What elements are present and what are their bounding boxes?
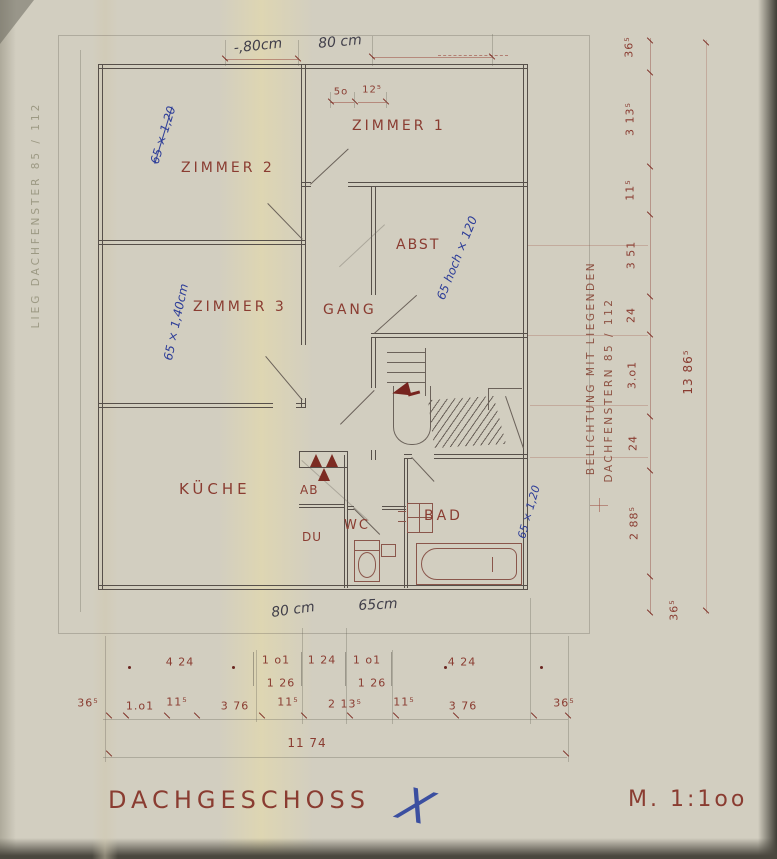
centerline-extension: [528, 335, 648, 336]
dim-bar: [253, 652, 254, 686]
extension-line: [256, 650, 257, 722]
dim-dot: [444, 666, 447, 669]
dimension-line: [225, 59, 298, 60]
bottom-dim-row1: 1 24: [308, 654, 337, 667]
dim-tick: [259, 712, 265, 718]
drawing-scale: M. 1:1oo: [628, 787, 747, 812]
right-dim: 3.o1: [626, 361, 639, 389]
wall-segment: [296, 403, 306, 408]
dim-tick: [164, 712, 170, 718]
bottom-dim-row1: 4 24: [166, 656, 195, 669]
sink-line: [419, 503, 420, 533]
paper-bottom-edge: [0, 838, 777, 859]
extension-line: [372, 36, 373, 66]
wall-outer-top: [98, 64, 528, 69]
handwritten-cross-mark: X: [390, 777, 441, 835]
wall-segment: [98, 240, 306, 245]
extension-line: [530, 598, 531, 724]
dim-tick: [393, 712, 399, 718]
dim-bar: [345, 652, 346, 686]
dim-dot: [232, 666, 235, 669]
wall-segment: [434, 454, 528, 459]
room-label-kueche: KÜCHE: [179, 480, 251, 498]
stair-tread: [387, 372, 425, 373]
stair-landing-line: [488, 388, 522, 389]
dim-tick: [106, 712, 112, 718]
stair-landing-line: [488, 388, 489, 410]
wall-segment: [382, 506, 406, 510]
room-label-zimmer3: ZIMMER 3: [193, 299, 287, 315]
right-dim: 24: [625, 307, 638, 323]
dim-dot: [128, 666, 131, 669]
wall-outer-left: [98, 64, 103, 590]
dim-tick: [531, 712, 537, 718]
bathtub-line: [492, 557, 493, 572]
vent-shaft-hatch: [299, 451, 348, 468]
bottom-dim-row1: 1 o1: [353, 654, 381, 667]
chain-total-line: [706, 40, 707, 614]
chain-line: [650, 38, 651, 614]
stair-hatched-run: [428, 396, 506, 448]
right-dim: 36⁵: [668, 599, 681, 620]
bottom-dim-row2: 2 13⁵: [328, 698, 362, 711]
right-total-dim: 13 86⁵: [681, 349, 695, 394]
dim-tick: [347, 712, 353, 718]
right-margin-note-line1: BELICHTUNG MIT LIEGENDEN: [585, 261, 597, 475]
centerline-extension: [530, 457, 648, 458]
left-margin-note: LIEG DACHFENSTER 85 / 112: [30, 102, 42, 329]
dim-bar: [301, 652, 302, 686]
right-margin-note-line2: DACHFENSTERN 85 / 112: [603, 298, 615, 483]
right-dim: 24: [627, 435, 640, 451]
toilet-cistern-line: [354, 550, 380, 551]
bathtub-inner: [421, 548, 517, 580]
paper-corner-shadow: [0, 0, 34, 44]
extension-line: [105, 636, 106, 762]
extension-line: [492, 34, 493, 66]
room-label-du: DU: [302, 530, 322, 544]
dim-tick: [123, 712, 129, 718]
extension-line: [386, 92, 387, 108]
leader-mark: [599, 498, 600, 512]
stair-tread: [387, 362, 425, 363]
room-label-ab: AB: [300, 483, 318, 497]
toilet-bowl: [358, 552, 376, 578]
right-dim: 3 13⁵: [624, 102, 637, 136]
room-label-zimmer1: ZIMMER 1: [352, 118, 446, 134]
wall-segment: [301, 245, 306, 345]
wall-segment: [299, 504, 345, 508]
dimension-line: [103, 719, 568, 720]
stair-tread: [387, 352, 425, 353]
floor-plan-sheet: ZIMMER 1 ZIMMER 2 ZIMMER 3 ABST GANG KÜC…: [0, 0, 777, 859]
room-label-zimmer2: ZIMMER 2: [181, 160, 275, 176]
room-label-bad: BAD: [424, 508, 463, 524]
right-dim: 36⁵: [623, 36, 636, 57]
handwritten-bottom-dim-b: 65cm: [358, 596, 398, 614]
room-label-gang: GANG: [323, 302, 377, 318]
dim-bar: [391, 652, 392, 686]
bottom-dim-row2: 36⁵: [553, 697, 574, 710]
bottom-total-dim: 11 74: [287, 736, 326, 750]
wall-segment: [371, 450, 376, 460]
shaft-triangle: [326, 454, 338, 467]
bottom-dim-row2: 3 76: [221, 700, 250, 713]
bottom-dim-row1: 4 24: [448, 656, 477, 669]
bottom-dim-row1-sub: 1 26: [358, 677, 387, 690]
wall-segment: [301, 64, 306, 244]
wall-dim-a: 5o: [334, 87, 348, 98]
bottom-dim-row1-sub: 1 26: [267, 677, 296, 690]
shaft-triangle: [318, 468, 330, 481]
bottom-dim-row2: 11⁵: [166, 696, 187, 709]
corner-sink: [381, 544, 396, 557]
plumbing-tick: [398, 521, 406, 522]
extension-line: [225, 40, 226, 66]
paper-right-edge: [758, 0, 777, 859]
bottom-dim-row1: 1 o1: [262, 654, 290, 667]
wall-segment: [371, 187, 376, 295]
bottom-dim-row2: 36⁵: [77, 697, 98, 710]
dim-tick: [106, 750, 112, 756]
dimension-line: [103, 757, 567, 758]
dim-dot: [540, 666, 543, 669]
extension-line: [330, 92, 331, 108]
centerline-extension: [528, 245, 648, 246]
paper-left-shade: [0, 0, 16, 859]
bottom-dim-row2: 11⁵: [277, 696, 298, 709]
drawing-title: DACHGESCHOSS: [108, 786, 370, 814]
dashed-roof-line: [438, 55, 508, 56]
bottom-dim-row2: 1.o1: [126, 700, 154, 713]
wall-dim-b: 12⁵: [362, 85, 382, 96]
wall-segment: [371, 338, 376, 388]
dimension-line: [372, 57, 492, 58]
wall-outer-bottom: [98, 585, 528, 590]
bottom-dim-row2: 3 76: [449, 700, 478, 713]
centerline-extension: [530, 405, 648, 406]
room-label-wc: WC: [344, 518, 370, 533]
dimension-line: [358, 102, 386, 103]
dim-tick: [194, 712, 200, 718]
plumbing-tick: [398, 511, 406, 512]
bottom-dim-row2: 11⁵: [393, 696, 414, 709]
extension-line: [298, 40, 299, 66]
right-dim: 11⁵: [624, 179, 637, 200]
right-dim: 2 88⁵: [628, 506, 641, 540]
extension-line: [302, 628, 303, 724]
dim-tick: [453, 712, 459, 718]
wall-segment: [371, 333, 528, 338]
guide-line: [80, 50, 81, 612]
wall-segment: [98, 403, 273, 408]
room-label-abst: ABST: [396, 237, 440, 253]
extension-line: [354, 92, 355, 108]
shaft-triangle: [310, 454, 322, 467]
